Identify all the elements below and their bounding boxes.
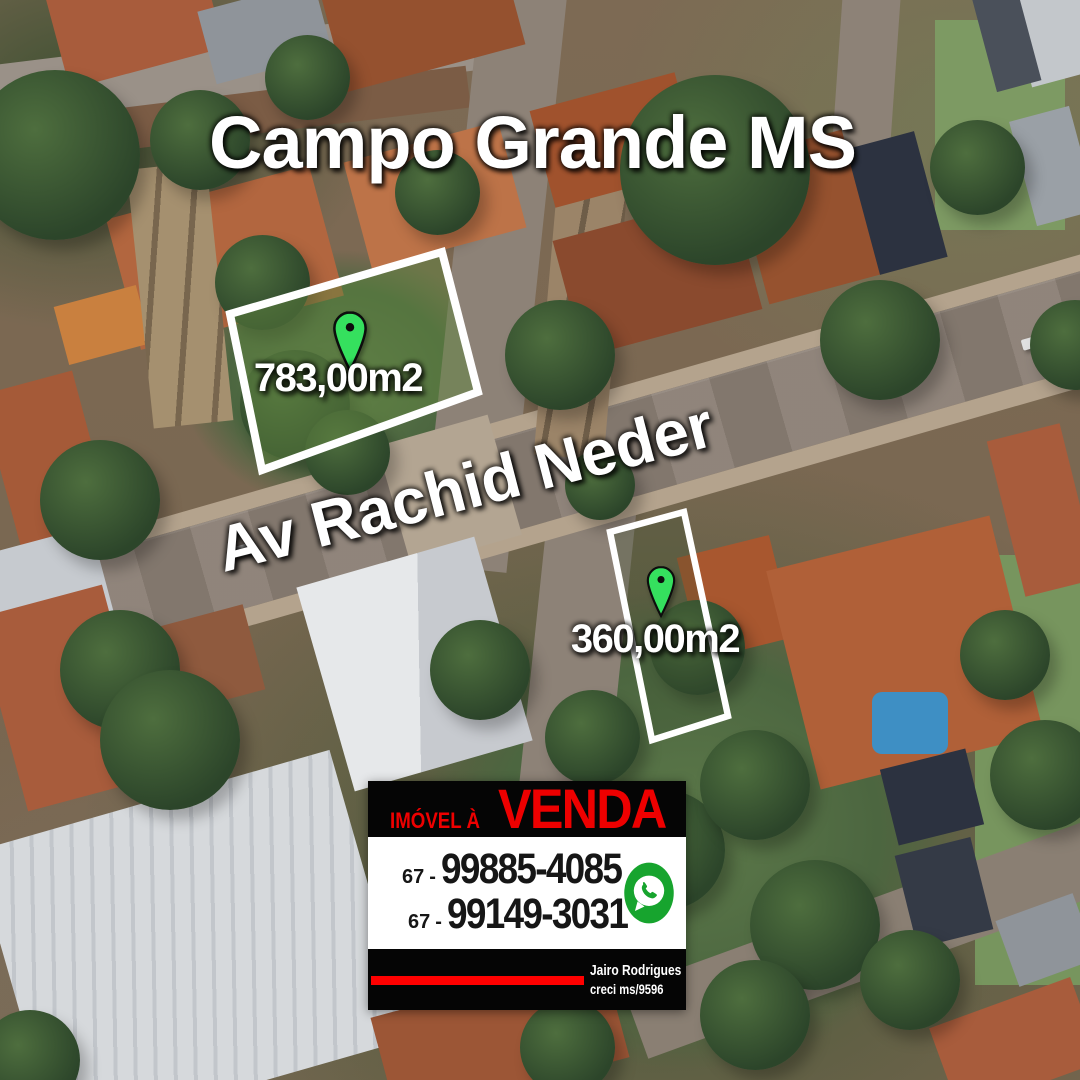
swimming-pool bbox=[872, 692, 948, 754]
tree bbox=[820, 280, 940, 400]
dash-separator: - bbox=[435, 911, 442, 934]
ad-phone-section: 67 - 99885-4085 67 - 99149-3031 bbox=[368, 837, 686, 949]
phone-number: 99149-3031 bbox=[447, 890, 627, 939]
whatsapp-icon[interactable] bbox=[622, 861, 676, 925]
city-title-label: Campo Grande MS bbox=[209, 100, 849, 185]
tree bbox=[700, 730, 810, 840]
ad-banner-venda: VENDA bbox=[498, 781, 665, 837]
tree bbox=[700, 960, 810, 1070]
tree bbox=[215, 235, 310, 330]
area-code: 67 bbox=[408, 911, 430, 934]
sale-ad-card: IMÓVEL À VENDA 67 - 99885-4085 67 - 9914… bbox=[368, 781, 686, 1010]
tree bbox=[860, 930, 960, 1030]
area-code: 67 bbox=[402, 866, 424, 889]
tree bbox=[960, 610, 1050, 700]
tree bbox=[505, 300, 615, 410]
map-pin-icon-360 bbox=[645, 564, 677, 620]
real-estate-ad-image: Campo Grande MS Av Rachid Neder 783,00m2… bbox=[0, 0, 1080, 1080]
red-stripe-divider bbox=[371, 976, 584, 985]
ad-banner: IMÓVEL À VENDA bbox=[368, 781, 686, 837]
tree bbox=[545, 690, 640, 785]
rooftop bbox=[54, 285, 152, 365]
lot-783-area-label: 783,00m2 bbox=[188, 356, 488, 401]
ad-footer: Jairo Rodrigues creci ms/9596 bbox=[368, 949, 686, 1010]
tree bbox=[100, 670, 240, 810]
agent-license: creci ms/9596 bbox=[590, 981, 663, 998]
agent-name: Jairo Rodrigues bbox=[590, 962, 681, 980]
phone-line-2: 67 - 99149-3031 bbox=[408, 890, 656, 939]
phone-line-1: 67 - 99885-4085 bbox=[402, 845, 650, 894]
ad-banner-prefix: IMÓVEL À bbox=[390, 808, 480, 834]
lot-360-area-label: 360,00m2 bbox=[505, 617, 805, 662]
tree bbox=[40, 440, 160, 560]
agent-info: Jairo Rodrigues creci ms/9596 bbox=[590, 962, 704, 1000]
tree bbox=[930, 120, 1025, 215]
phone-number: 99885-4085 bbox=[441, 845, 621, 894]
dash-separator: - bbox=[429, 866, 436, 889]
